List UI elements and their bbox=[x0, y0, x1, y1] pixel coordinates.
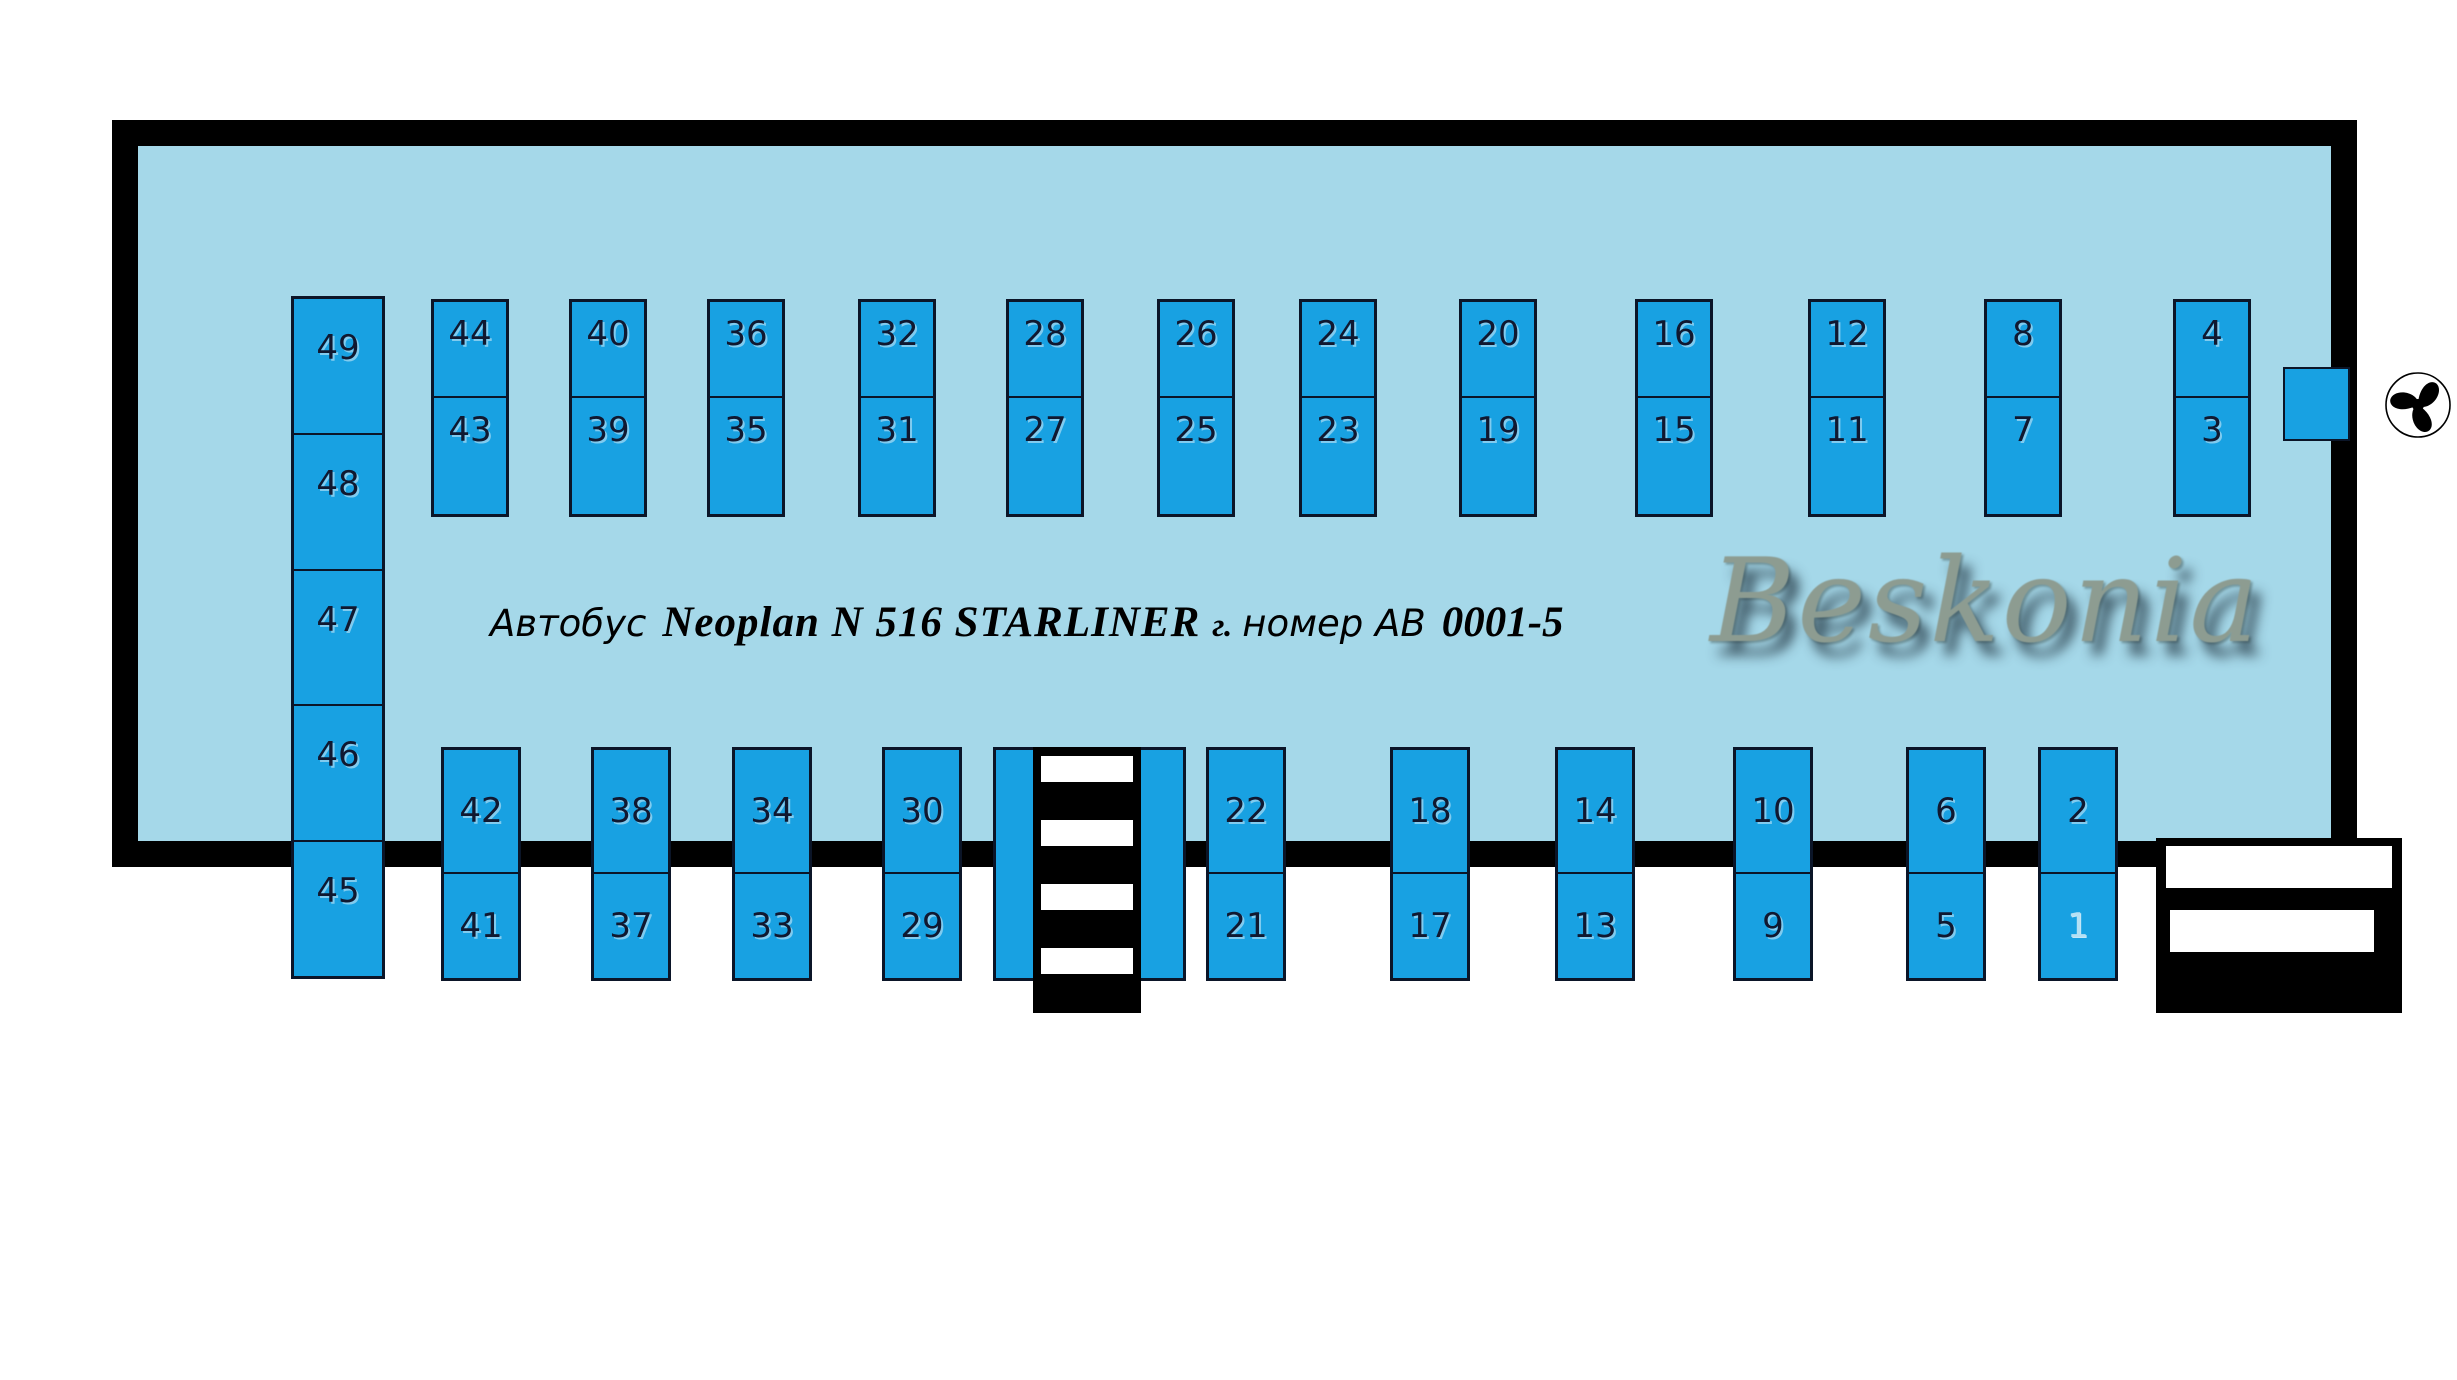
seat-number: 49 bbox=[316, 331, 359, 365]
seat-number: 13 bbox=[1573, 909, 1616, 943]
seat-number: 24 bbox=[1316, 317, 1359, 351]
seat-number: 3 bbox=[2201, 413, 2223, 447]
seat-number: 47 bbox=[316, 603, 359, 637]
seat-number: 37 bbox=[609, 909, 652, 943]
seat-number: 12 bbox=[1825, 317, 1868, 351]
seat-29[interactable]: 29 bbox=[885, 874, 959, 978]
bus-title: Автобус Neoplan N 516 STARLINER г. номер… bbox=[490, 598, 1564, 647]
seat-pair: 3029 bbox=[882, 747, 962, 981]
seat-number: 1 bbox=[2067, 909, 2089, 943]
seat-pair: 3635 bbox=[707, 299, 785, 517]
seat-25[interactable]: 25 bbox=[1160, 398, 1232, 514]
title-plate-number: 0001-5 bbox=[1442, 598, 1564, 647]
seat-41[interactable]: 41 bbox=[444, 874, 518, 978]
seat-15[interactable]: 15 bbox=[1638, 398, 1710, 514]
seat-pair: 3837 bbox=[591, 747, 671, 981]
seat-11[interactable]: 11 bbox=[1811, 398, 1883, 514]
seat-number: 22 bbox=[1224, 794, 1267, 828]
seat-number: 45 bbox=[316, 874, 359, 908]
seat-number: 35 bbox=[724, 413, 767, 447]
seat-pair: 1413 bbox=[1555, 747, 1635, 981]
door-step bbox=[2166, 846, 2392, 888]
stairs-icon bbox=[1033, 747, 1141, 1013]
seat-number: 43 bbox=[448, 413, 491, 447]
seat-31[interactable]: 31 bbox=[861, 398, 933, 514]
seat-pair: 65 bbox=[1906, 747, 1986, 981]
seat-46[interactable]: 46 bbox=[294, 706, 382, 842]
seat-19[interactable]: 19 bbox=[1462, 398, 1534, 514]
seat-pair: 4039 bbox=[569, 299, 647, 517]
seat-49[interactable]: 49 bbox=[294, 299, 382, 435]
seat-number: 11 bbox=[1825, 413, 1868, 447]
seat-number: 8 bbox=[2012, 317, 2034, 351]
driver-seat bbox=[2283, 367, 2350, 441]
seat-22[interactable]: 22 bbox=[1209, 750, 1283, 874]
seat-number: 29 bbox=[900, 909, 943, 943]
seat-number: 28 bbox=[1023, 317, 1066, 351]
seat-5[interactable]: 5 bbox=[1909, 874, 1983, 978]
seat-pair: 2019 bbox=[1459, 299, 1537, 517]
seat-number: 25 bbox=[1174, 413, 1217, 447]
seat-28[interactable]: 28 bbox=[1009, 302, 1081, 398]
seat-1[interactable]: 1 bbox=[2041, 874, 2115, 978]
seat-35[interactable]: 35 bbox=[710, 398, 782, 514]
seat-pair: 4443 bbox=[431, 299, 509, 517]
seat-4[interactable]: 4 bbox=[2176, 302, 2248, 398]
seat-26[interactable]: 26 bbox=[1160, 302, 1232, 398]
seat-number: 36 bbox=[724, 317, 767, 351]
seat-pair: 109 bbox=[1733, 747, 1813, 981]
seat-21[interactable]: 21 bbox=[1209, 874, 1283, 978]
seat-43[interactable]: 43 bbox=[434, 398, 506, 514]
bus-outline: 4948474645 44434039363532312827262524232… bbox=[112, 120, 2357, 867]
seat-27[interactable]: 27 bbox=[1009, 398, 1081, 514]
stair-step bbox=[1041, 948, 1133, 974]
seat-pair: 2221 bbox=[1206, 747, 1286, 981]
seat-number: 4 bbox=[2201, 317, 2223, 351]
door-step bbox=[2170, 910, 2374, 952]
seat-42[interactable]: 42 bbox=[444, 750, 518, 874]
seat-number: 30 bbox=[900, 794, 943, 828]
seat-number: 41 bbox=[459, 909, 502, 943]
seat-24[interactable]: 24 bbox=[1302, 302, 1374, 398]
seat-number: 26 bbox=[1174, 317, 1217, 351]
seat-number: 5 bbox=[1935, 909, 1957, 943]
seat-48[interactable]: 48 bbox=[294, 435, 382, 571]
seat-pair: 2625 bbox=[1157, 299, 1235, 517]
seat-pair: 1211 bbox=[1808, 299, 1886, 517]
seat-47[interactable]: 47 bbox=[294, 571, 382, 707]
seat-33[interactable]: 33 bbox=[735, 874, 809, 978]
stair-step bbox=[1041, 820, 1133, 846]
title-city-abbr: г. bbox=[1212, 608, 1232, 645]
seat-number: 42 bbox=[459, 794, 502, 828]
seat-45[interactable]: 45 bbox=[294, 842, 382, 976]
brand-watermark: Beskonia bbox=[1710, 544, 2261, 660]
seat-2[interactable]: 2 bbox=[2041, 750, 2115, 874]
seat-20[interactable]: 20 bbox=[1462, 302, 1534, 398]
seat-30[interactable]: 30 bbox=[885, 750, 959, 874]
seat-number: 10 bbox=[1751, 794, 1794, 828]
stair-step bbox=[1041, 756, 1133, 782]
seat-number: 33 bbox=[750, 909, 793, 943]
seat-number: 48 bbox=[316, 467, 359, 501]
seat-9[interactable]: 9 bbox=[1736, 874, 1810, 978]
stair-step bbox=[1041, 884, 1133, 910]
seat-number: 7 bbox=[2012, 413, 2034, 447]
seat-number: 31 bbox=[875, 413, 918, 447]
seat-23[interactable]: 23 bbox=[1302, 398, 1374, 514]
seat-number: 14 bbox=[1573, 794, 1616, 828]
seat-39[interactable]: 39 bbox=[572, 398, 644, 514]
steering-wheel-icon bbox=[2384, 371, 2452, 439]
seat-44[interactable]: 44 bbox=[434, 302, 506, 398]
seat-number: 40 bbox=[586, 317, 629, 351]
seat-pair: 87 bbox=[1984, 299, 2062, 517]
seat-number: 6 bbox=[1935, 794, 1957, 828]
seat-pair: 2827 bbox=[1006, 299, 1084, 517]
seat-7[interactable]: 7 bbox=[1987, 398, 2059, 514]
seat-number: 23 bbox=[1316, 413, 1359, 447]
seat-pair: 1615 bbox=[1635, 299, 1713, 517]
seat-pair: 1817 bbox=[1390, 747, 1470, 981]
seat-number: 19 bbox=[1476, 413, 1519, 447]
seat-3[interactable]: 3 bbox=[2176, 398, 2248, 514]
steps-icon bbox=[2156, 838, 2402, 1013]
seat-number: 2 bbox=[2067, 794, 2089, 828]
seat-pair: 4241 bbox=[441, 747, 521, 981]
title-number-label: номер АВ bbox=[1242, 602, 1425, 645]
seat-number: 16 bbox=[1652, 317, 1695, 351]
seat-number: 17 bbox=[1408, 909, 1451, 943]
seat-number: 44 bbox=[448, 317, 491, 351]
seat-37[interactable]: 37 bbox=[594, 874, 668, 978]
seat-number: 15 bbox=[1652, 413, 1695, 447]
seat-8[interactable]: 8 bbox=[1987, 302, 2059, 398]
seat-18[interactable]: 18 bbox=[1393, 750, 1467, 874]
seat-36[interactable]: 36 bbox=[710, 302, 782, 398]
seat-32[interactable]: 32 bbox=[861, 302, 933, 398]
seat-pair: 3231 bbox=[858, 299, 936, 517]
seat-pair: 43 bbox=[2173, 299, 2251, 517]
seat-pair: 3433 bbox=[732, 747, 812, 981]
seat-pair: 2423 bbox=[1299, 299, 1377, 517]
seat-number: 18 bbox=[1408, 794, 1451, 828]
seat-number: 9 bbox=[1762, 909, 1784, 943]
seat-pair: 21 bbox=[2038, 747, 2118, 981]
seat-40[interactable]: 40 bbox=[572, 302, 644, 398]
seat-6[interactable]: 6 bbox=[1909, 750, 1983, 874]
seat-number: 21 bbox=[1224, 909, 1267, 943]
seat-number: 39 bbox=[586, 413, 629, 447]
seat-number: 27 bbox=[1023, 413, 1066, 447]
seat-number: 20 bbox=[1476, 317, 1519, 351]
seat-12[interactable]: 12 bbox=[1811, 302, 1883, 398]
back-row-seat-column: 4948474645 bbox=[291, 296, 385, 979]
seat-14[interactable]: 14 bbox=[1558, 750, 1632, 874]
title-model: Neoplan N 516 STARLINER bbox=[662, 598, 1200, 647]
seat-number: 34 bbox=[750, 794, 793, 828]
seat-number: 32 bbox=[875, 317, 918, 351]
seat-13[interactable]: 13 bbox=[1558, 874, 1632, 978]
seat-10[interactable]: 10 bbox=[1736, 750, 1810, 874]
title-prefix: Автобус bbox=[490, 602, 646, 645]
seat-number: 46 bbox=[316, 738, 359, 772]
seat-17[interactable]: 17 bbox=[1393, 874, 1467, 978]
seat-number: 38 bbox=[609, 794, 652, 828]
seat-16[interactable]: 16 bbox=[1638, 302, 1710, 398]
seat-38[interactable]: 38 bbox=[594, 750, 668, 874]
bus-seat-map-page: 4948474645 44434039363532312827262524232… bbox=[0, 0, 2457, 1380]
seat-34[interactable]: 34 bbox=[735, 750, 809, 874]
